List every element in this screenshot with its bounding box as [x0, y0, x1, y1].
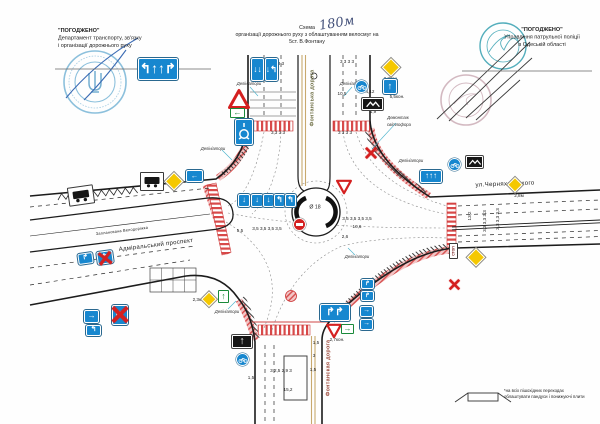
stop-text: СТОП	[452, 246, 456, 256]
bicycle-route-sign	[355, 80, 368, 93]
red-x-mark: ×	[364, 142, 378, 166]
lane-sign: ↱	[361, 279, 374, 289]
delineators-label: Делініатори	[399, 159, 423, 164]
green-arrow-sign: →	[341, 324, 354, 334]
footnote-line2: облаштувати пандуси і понижуючі плити	[504, 394, 600, 400]
title-line2: організації дорожнього руху з облаштуван…	[107, 31, 507, 38]
dimension-label: 3 2,5 2,9 3	[270, 368, 292, 373]
left-arrow-sign: ←	[186, 170, 203, 182]
demontage-label: Демонтаж	[387, 116, 408, 121]
delineators-label: Делініатори	[345, 255, 369, 260]
green-arrow-sign: ←	[230, 108, 245, 118]
lane-sign: ↖×	[112, 305, 128, 325]
dimension-label: 3,5 3,5 3,5 3,5	[252, 226, 281, 231]
priority-road-sign	[507, 177, 522, 192]
dimension-label: 3 3 3 3	[338, 130, 352, 135]
no-entry-sign	[293, 218, 306, 231]
demontage-label: світлофора	[387, 123, 411, 128]
dimension-label: 13,2	[467, 212, 472, 221]
lane-sign: →	[360, 306, 373, 317]
priority-road-diamond	[165, 172, 183, 190]
median-lines	[452, 220, 600, 230]
title-line3: 5ст. В.Фонтану	[107, 38, 507, 45]
priority-road-diamond	[507, 177, 523, 193]
stop-plate: СТОП	[449, 243, 458, 259]
dimension-label: 3,3 3 3	[271, 130, 285, 135]
priority-road-diamond	[201, 291, 216, 306]
dimension-label: 5,5кон.	[390, 94, 405, 99]
red-x-mark: ×	[95, 243, 115, 272]
priority-road-diamond	[467, 248, 485, 266]
delineators-label: Делініатори	[215, 310, 239, 315]
dimension-label: 1,5	[248, 375, 254, 380]
bus-stop-sign	[67, 184, 95, 206]
dimension-label: 3 3 3 3	[340, 59, 354, 64]
delineators-label: Делініатори	[201, 147, 225, 152]
lane-sign: ↰×	[96, 250, 114, 265]
dimension-label: 1,5	[313, 340, 319, 345]
dimension-label: 5,5	[237, 228, 243, 233]
dimension-label: 1,9	[370, 109, 376, 114]
priority-road-sign	[165, 172, 182, 189]
demontage-x-mark: ×	[363, 146, 379, 162]
title-word: Схема	[107, 24, 507, 31]
lane-sign: ↓	[263, 194, 274, 207]
route-plate-sign	[466, 156, 483, 168]
lane-sign: ↱	[361, 291, 374, 301]
bicycle-route-sign	[448, 158, 461, 171]
lane-sign: ↓	[251, 194, 263, 207]
lane-control-board: ↑↑↑	[420, 170, 442, 183]
bicycle-route-sign	[236, 353, 249, 366]
priority-road-sign	[467, 248, 484, 265]
bus-stop-sign	[140, 172, 164, 191]
lane-sign: ↱	[77, 252, 93, 265]
roundabout-diameter: Ø 18	[309, 204, 320, 210]
warning-triangle-sign	[228, 88, 250, 110]
priority-road-diamond	[382, 58, 400, 76]
lane-sign: ↓↰	[265, 58, 278, 81]
dimension-label: 4,12	[366, 89, 375, 94]
give-way-sign	[326, 323, 342, 339]
lane-sign: ↰	[285, 194, 296, 207]
dimension-label: 10,6	[353, 224, 362, 229]
red-x-mark: ×	[110, 298, 130, 332]
lane-sign: →	[84, 310, 99, 323]
priority-road-sign	[202, 292, 216, 306]
street-label-north: Фонтанська дорога	[309, 70, 315, 127]
route-direction-sign: ↑	[232, 335, 252, 348]
lane-sign: ↓	[238, 194, 250, 207]
lane-control-board: ↱↱	[320, 304, 350, 321]
dimension-label: 3	[313, 353, 316, 358]
scanned-traffic-scheme-sheet: { "approvals": { "left": {"title": "\"ПО…	[0, 0, 600, 424]
dimension-label: 10,5	[338, 91, 347, 96]
dimension-label: 3,5 3,5 3,5 3,5	[342, 216, 371, 221]
give-way-sign	[336, 179, 352, 195]
priority-road-sign	[382, 58, 399, 75]
red-x-mark: ×	[448, 273, 461, 296]
splitter-island	[286, 291, 297, 302]
lane-sign: ↓↓	[251, 58, 264, 81]
street-label-south: Фонтанская дорога	[325, 340, 331, 397]
demontage-x-mark: ×	[447, 277, 462, 292]
lane-sign: ↰	[274, 194, 285, 207]
speed-table-symbol	[455, 393, 511, 402]
dimension-label: 3,3 3,3 3,3	[482, 210, 487, 232]
lane-control-board: ↰↑↑↱	[138, 58, 178, 80]
dimension-label: 2,6	[342, 234, 348, 239]
green-arrow-sign: ↑	[218, 290, 229, 303]
dimension-label: 3,3 3,3 3,3	[495, 208, 500, 230]
lane-sign: →	[360, 319, 373, 330]
no-entry-bar	[296, 223, 303, 225]
dimension-label: 1,5	[310, 367, 316, 372]
footnote-block: *на всіх пішохідних переходах облаштуват…	[504, 388, 600, 411]
dimension-label: 15,2	[284, 387, 293, 392]
straight-ahead-sign: ↑	[383, 79, 397, 94]
dimension-label: 2,8м	[514, 193, 524, 198]
delineators-label: Делініатори	[237, 82, 261, 87]
roundabout-scheme-sign	[235, 119, 253, 145]
lane-sign: ↰	[86, 325, 101, 336]
route-plate-sign	[362, 98, 383, 110]
